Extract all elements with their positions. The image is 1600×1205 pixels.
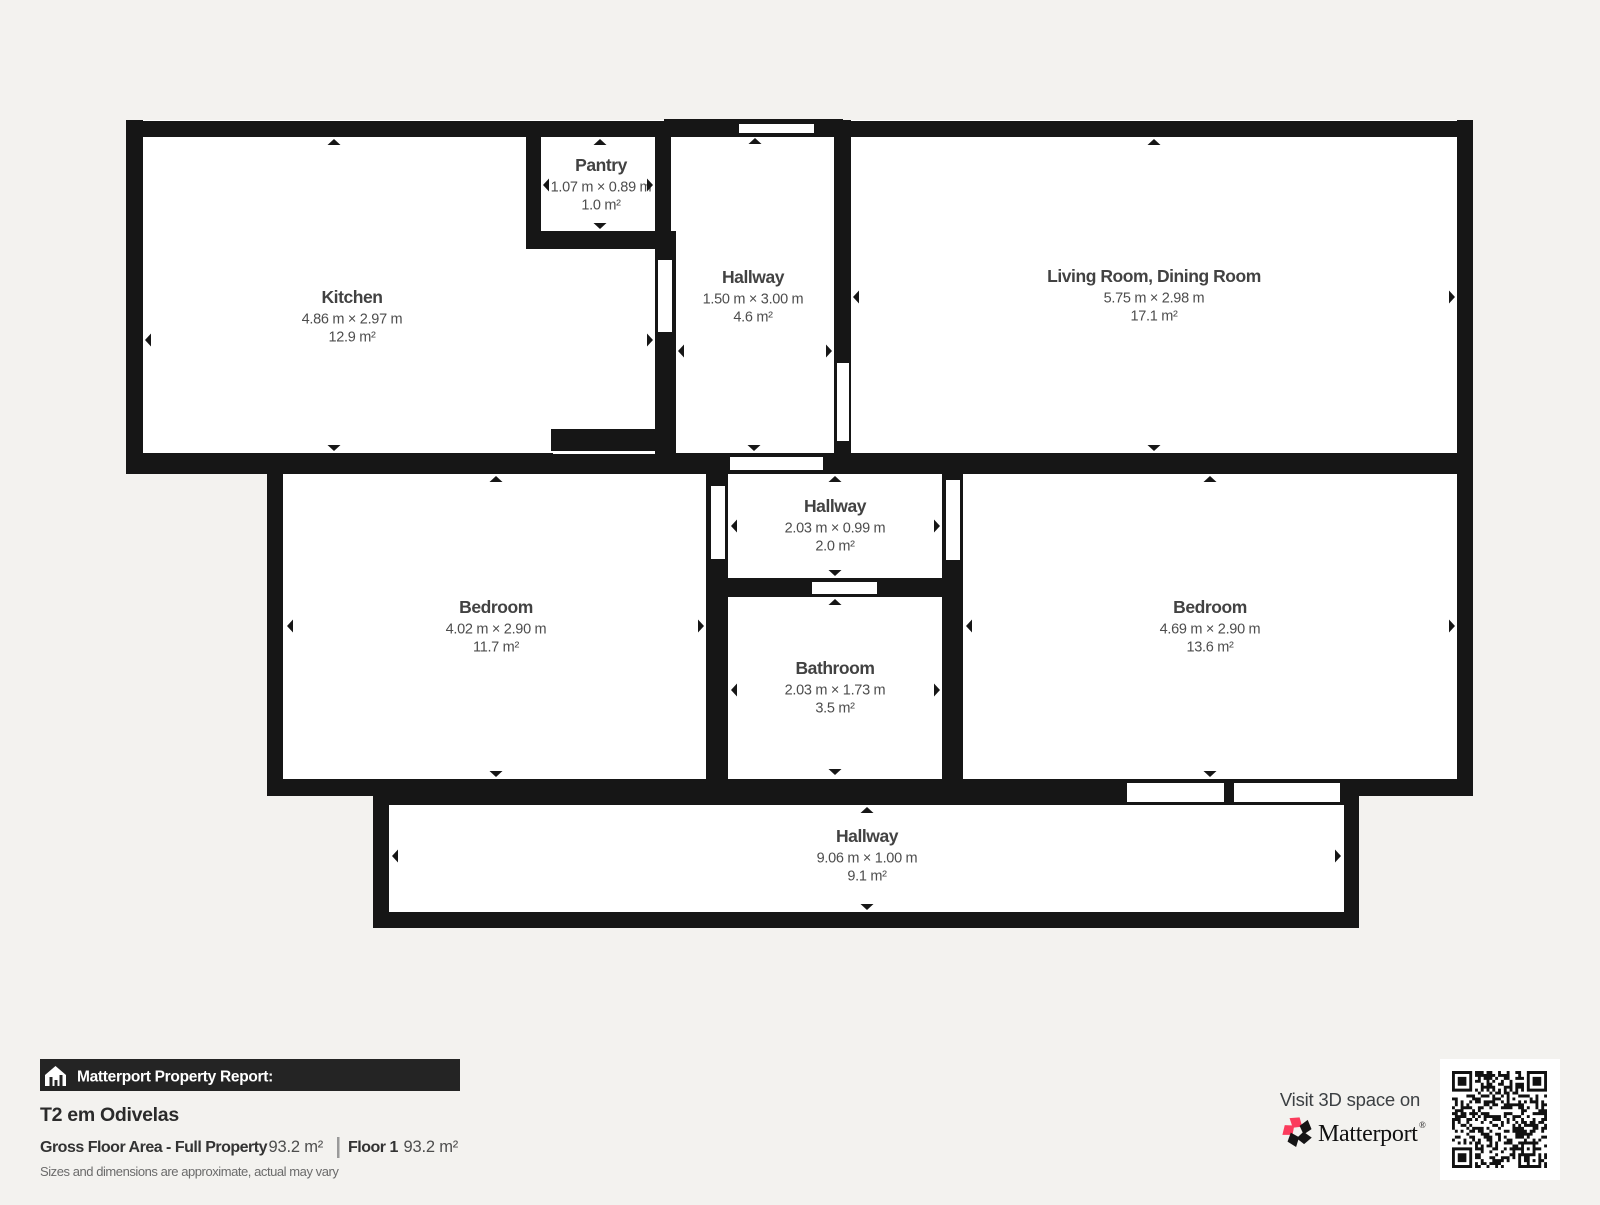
svg-text:Pantry: Pantry bbox=[575, 155, 627, 175]
svg-text:Matterport: Matterport bbox=[1318, 1121, 1418, 1147]
svg-text:Hallway: Hallway bbox=[722, 267, 785, 287]
svg-text:4.69 m × 2.90 m: 4.69 m × 2.90 m bbox=[1160, 622, 1261, 638]
svg-text:Hallway: Hallway bbox=[836, 826, 899, 846]
svg-text:3.5 m²: 3.5 m² bbox=[815, 701, 855, 717]
svg-text:Kitchen: Kitchen bbox=[321, 287, 382, 307]
svg-text:9.1 m²: 9.1 m² bbox=[847, 869, 887, 885]
svg-text:11.7 m²: 11.7 m² bbox=[473, 640, 519, 656]
svg-text:Floor 1: Floor 1 bbox=[348, 1139, 398, 1156]
svg-text:2.0 m²: 2.0 m² bbox=[815, 539, 855, 555]
svg-text:4.86 m × 2.97 m: 4.86 m × 2.97 m bbox=[302, 312, 403, 328]
svg-text:5.75 m × 2.98 m: 5.75 m × 2.98 m bbox=[1104, 291, 1205, 307]
svg-text:1.0 m²: 1.0 m² bbox=[581, 198, 621, 214]
svg-text:2.03 m × 0.99 m: 2.03 m × 0.99 m bbox=[785, 521, 886, 537]
svg-text:2.03 m × 1.73 m: 2.03 m × 1.73 m bbox=[785, 683, 886, 699]
svg-text:Matterport Property Report:: Matterport Property Report: bbox=[77, 1069, 273, 1086]
svg-text:Living Room, Dining Room: Living Room, Dining Room bbox=[1047, 266, 1261, 286]
svg-text:13.6 m²: 13.6 m² bbox=[1186, 640, 1234, 656]
svg-text:Bedroom: Bedroom bbox=[459, 597, 533, 617]
svg-text:12.9 m²: 12.9 m² bbox=[328, 330, 376, 346]
svg-text:®: ® bbox=[1419, 1120, 1426, 1130]
svg-text:Sizes and dimensions are appro: Sizes and dimensions are approximate, ac… bbox=[40, 1164, 339, 1179]
svg-text:1.07 m × 0.89 m: 1.07 m × 0.89 m bbox=[551, 180, 652, 196]
svg-text:93.2 m²: 93.2 m² bbox=[404, 1138, 459, 1156]
svg-text:17.1 m²: 17.1 m² bbox=[1130, 309, 1178, 325]
svg-text:9.06 m × 1.00 m: 9.06 m × 1.00 m bbox=[817, 851, 918, 867]
svg-text:Gross Floor Area - Full Proper: Gross Floor Area - Full Property bbox=[40, 1139, 268, 1156]
svg-text:Bathroom: Bathroom bbox=[795, 658, 874, 678]
svg-text:Bedroom: Bedroom bbox=[1173, 597, 1247, 617]
svg-text:T2 em Odivelas: T2 em Odivelas bbox=[40, 1104, 179, 1126]
svg-text:93.2 m²: 93.2 m² bbox=[269, 1138, 324, 1156]
svg-text:Hallway: Hallway bbox=[804, 496, 867, 516]
svg-text:Visit 3D space on: Visit 3D space on bbox=[1280, 1089, 1420, 1110]
svg-text:1.50 m × 3.00 m: 1.50 m × 3.00 m bbox=[703, 292, 804, 308]
svg-text:4.02 m × 2.90 m: 4.02 m × 2.90 m bbox=[446, 622, 547, 638]
svg-text:4.6 m²: 4.6 m² bbox=[733, 310, 773, 326]
